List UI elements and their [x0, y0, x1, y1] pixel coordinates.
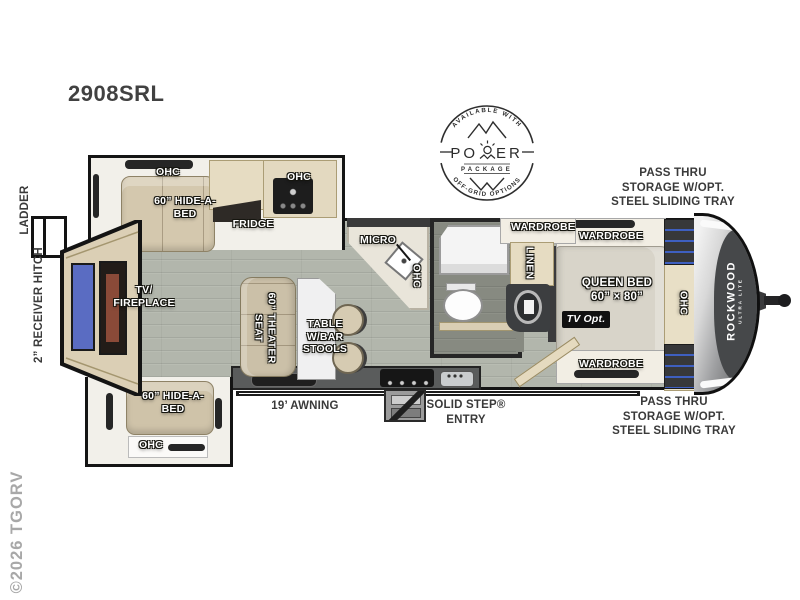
badge-package-text: PACKAGE: [461, 167, 513, 173]
ohc-bedroom-label: OHC: [677, 291, 690, 315]
washer-window-icon: [524, 300, 534, 314]
hitch-ball-icon: [778, 294, 791, 307]
receiver-hitch-label: 2” RECEIVER HITCH: [32, 247, 47, 363]
badge-mountains-icon: [468, 122, 506, 138]
tv-screen-icon: [72, 264, 94, 350]
ohc-range-label: OHC: [271, 171, 327, 184]
svg-text:OFF-GRID OPTIONS: OFF-GRID OPTIONS: [451, 176, 522, 198]
ohc-label: OHC: [123, 439, 179, 452]
wardrobe-bottom-label: WARDROBE: [566, 358, 656, 371]
backsplash: [347, 218, 432, 227]
cap-trim-icon: [700, 376, 743, 388]
island-table-label: TABLE W/BAR STOOLS: [296, 318, 354, 356]
pass-thru-bottom-label: PASS THRU STORAGE W/OPT. STEEL SLIDING T…: [599, 395, 749, 439]
queen-bed-label: QUEEN BED 60” × 80”: [561, 276, 673, 304]
hide-a-bed-label: 60” HIDE-A- BED: [140, 195, 230, 220]
brand-sub: ULTRA LITE: [738, 261, 744, 341]
pass-thru-top-label: PASS THRU STORAGE W/OPT. STEEL SLIDING T…: [598, 166, 748, 210]
ohc-label: OHC: [140, 166, 196, 179]
shower-icon: [439, 225, 509, 275]
badge-mountains-bottom-icon: [470, 178, 504, 190]
badge-power-po: PO: [450, 145, 478, 162]
badge-sun-icon: [480, 141, 495, 159]
theater-seat-label: 60” THEATER SEAT: [253, 278, 278, 378]
brand-name: ROCKWOOD: [727, 261, 738, 341]
window-icon: [93, 174, 99, 218]
window-icon: [106, 393, 113, 430]
ohc-kitchen-label: OHC: [410, 264, 423, 288]
watermark: ©2026 TGORV: [10, 471, 25, 594]
awning-bar-icon: [236, 391, 640, 396]
ladder-label: LADDER: [18, 185, 33, 234]
floorplan-page: 2908SRL ©2026 TGORV AVAILABLE WITH OFF-G…: [0, 0, 800, 600]
brand-logo: ROCKWOOD ULTRA LITE: [727, 261, 744, 341]
page-title: 2908SRL: [68, 81, 164, 107]
fridge-label: FRIDGE: [213, 218, 293, 231]
tv-fireplace-label: TV/ FIREPLACE: [96, 284, 192, 309]
bath-shelf: [439, 322, 513, 331]
wardrobe-top-label: WARDROBE: [566, 230, 656, 243]
solid-step-entry-label: SOLID STEP® ENTRY: [408, 398, 524, 427]
badge-arc-bottom-text: OFF-GRID OPTIONS: [451, 176, 522, 198]
toilet-icon: [443, 289, 483, 322]
washer-dryer-icon: [506, 284, 550, 332]
cap-trim-icon: [700, 219, 743, 231]
badge-arc-top-text: AVAILABLE WITH: [451, 107, 523, 129]
svg-text:AVAILABLE WITH: AVAILABLE WITH: [451, 107, 523, 129]
badge-power-er: ER: [496, 145, 523, 162]
window-icon: [574, 370, 639, 378]
linen-label: LINEN: [523, 247, 536, 280]
sink-icon: [440, 371, 474, 387]
cooktop-icon: [380, 369, 434, 387]
tv-opt-label: TV Opt.: [562, 313, 610, 326]
micro-label: MICRO: [348, 234, 408, 247]
awning-label: 19’ AWNING: [255, 399, 355, 414]
washer-door-icon: [514, 290, 542, 324]
power-package-badge-icon: AVAILABLE WITH OFF-GRID OPTIONS PO ER PA…: [430, 96, 544, 210]
